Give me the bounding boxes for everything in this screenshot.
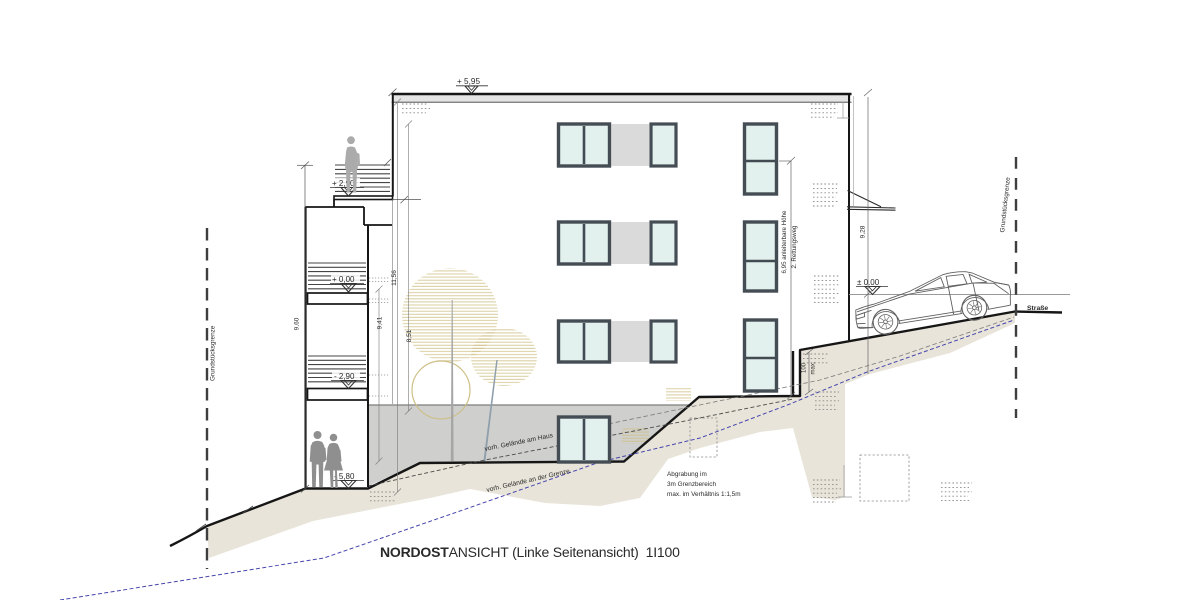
svg-text:3m Grenzbereich: 3m Grenzbereich [667, 481, 716, 488]
svg-text:Abgrabung im: Abgrabung im [667, 471, 707, 478]
svg-text:9,60: 9,60 [294, 317, 301, 330]
svg-text:9,28: 9,28 [860, 225, 867, 238]
svg-text:2. Rettungsweg: 2. Rettungsweg [791, 225, 798, 269]
svg-text:+ 0,00: + 0,00 [332, 275, 355, 284]
svg-text:+ 5,95: + 5,95 [457, 77, 480, 86]
svg-text:+ 2,90: + 2,90 [332, 179, 355, 188]
svg-text:8,51: 8,51 [406, 329, 413, 342]
svg-text:100: 100 [802, 362, 808, 373]
svg-text:Grundstücksgrenze: Grundstücksgrenze [210, 325, 217, 381]
svg-text:9,41: 9,41 [377, 316, 384, 329]
svg-text:max. im Verhältnis 1:1,5m: max. im Verhältnis 1:1,5m [667, 491, 741, 498]
svg-text:Straße: Straße [1027, 305, 1048, 312]
svg-text:NORDOSTANSICHT (Linke Seitenan: NORDOSTANSICHT (Linke Seitenansicht)1I10… [380, 544, 680, 560]
svg-text:6,95 anleiterbare Höhe: 6,95 anleiterbare Höhe [781, 210, 788, 274]
svg-text:11,56: 11,56 [391, 270, 398, 286]
svg-text:- 2,90: - 2,90 [334, 372, 355, 381]
svg-text:± 0.00: ± 0.00 [857, 278, 880, 287]
